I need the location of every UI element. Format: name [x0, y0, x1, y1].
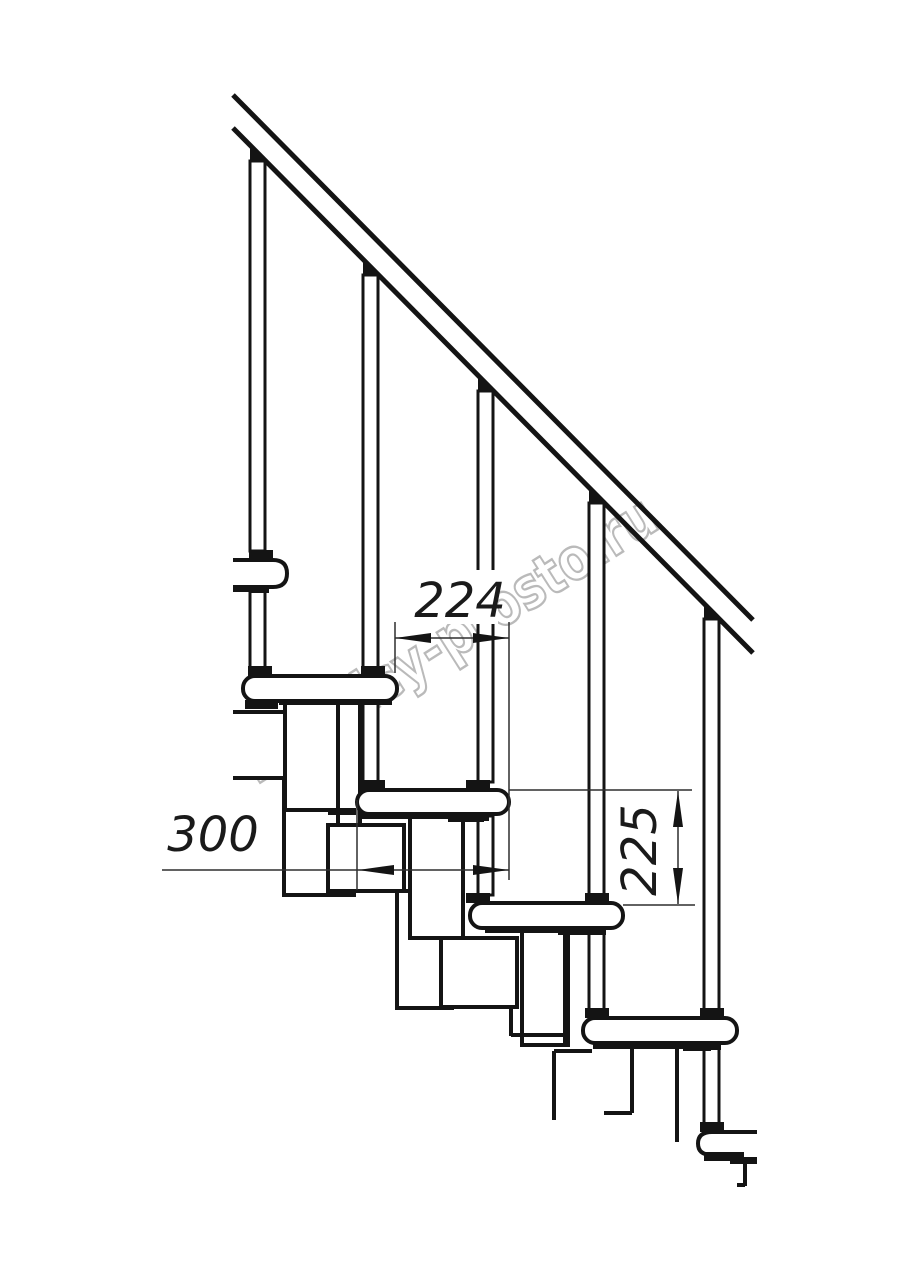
dimension-value-going: 224: [414, 573, 506, 629]
spine-fadeout-lines: [604, 1043, 677, 1142]
drawing-sheet: lestnicy-prosto.ru: [0, 0, 914, 1280]
baluster-post: [589, 929, 604, 1010]
baluster-post: [250, 586, 265, 668]
staircase-technical-drawing: lestnicy-prosto.ru: [0, 0, 914, 1280]
spine-fadeout-lines: [737, 1163, 745, 1186]
spine-riser-bar: [522, 927, 568, 1045]
tread: [243, 676, 397, 701]
spine-riser-bar: [410, 813, 463, 938]
baluster-post: [589, 503, 604, 895]
baluster-post: [250, 161, 265, 551]
baluster-post: [363, 275, 378, 668]
spine-module: [441, 938, 517, 1007]
tread-stub-lower: [698, 1132, 757, 1155]
baluster-post: [704, 619, 719, 1010]
baluster-post: [478, 816, 493, 895]
spine-module: [328, 825, 404, 891]
tread: [470, 903, 623, 928]
dimension-value-rise: 225: [612, 804, 668, 896]
baluster-post: [363, 702, 378, 782]
spine-fadeout-lines: [554, 1051, 592, 1120]
spine-module-cut: [233, 712, 291, 778]
tread-stub-upper: [233, 560, 287, 587]
dimension-value-tread-depth: 300: [167, 807, 259, 863]
spine-riser-bar: [285, 700, 338, 810]
tread: [357, 790, 509, 814]
tread: [583, 1018, 737, 1043]
dimension-arrow-up: [673, 791, 683, 827]
dimension-arrow-down: [673, 868, 683, 904]
baluster-post: [704, 1044, 719, 1124]
